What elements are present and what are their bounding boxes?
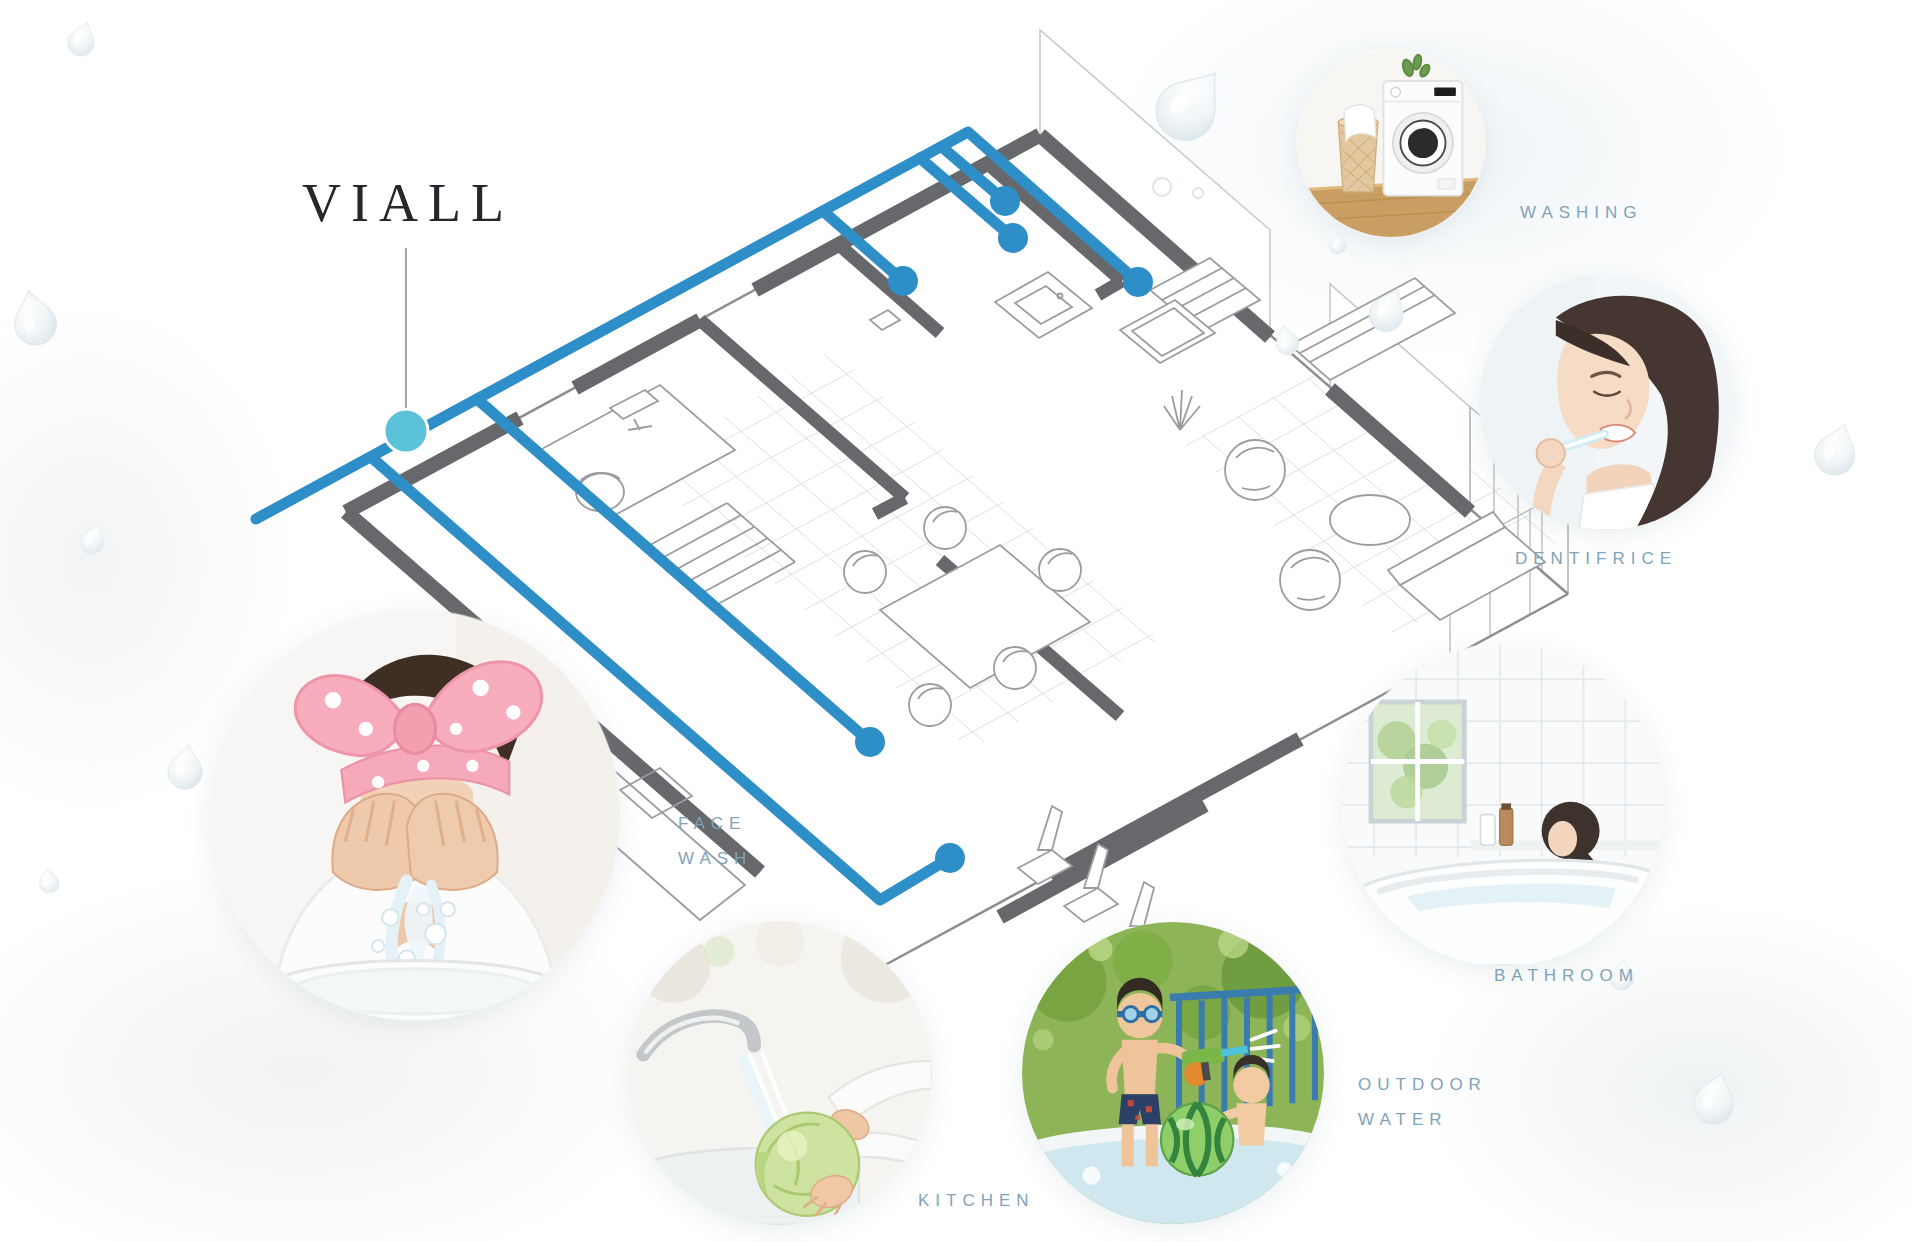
supply-source-dot [384, 409, 428, 453]
brand-connector-line [405, 248, 407, 408]
outlet-dot-washing [990, 186, 1020, 216]
label-outdoor-line1: OUTDOOR [1358, 1075, 1487, 1094]
outlet-dot-kitchen [855, 727, 885, 757]
outdoor-photo-art [1022, 922, 1324, 1224]
label-washing: WASHING [1520, 203, 1643, 223]
photo-outdoor-water [1022, 922, 1324, 1224]
label-kitchen: KITCHEN [918, 1191, 1035, 1211]
label-face-line2: WASH [678, 849, 752, 869]
photo-face-wash [210, 610, 620, 1020]
label-face-wash: FACE WASH [678, 814, 752, 869]
washing-machine [1383, 81, 1462, 196]
wall-art [870, 310, 900, 330]
laundry-basket [1338, 105, 1377, 192]
photo-kitchen [628, 921, 932, 1225]
bathroom-photo-art [1342, 644, 1664, 966]
outlet-dot-bath [1123, 267, 1153, 297]
kitchen-photo-art [628, 921, 932, 1225]
outlet-dot-toilet [888, 266, 918, 296]
dentifrice-photo-art [1479, 274, 1735, 530]
brand-logo: VIALL [248, 172, 568, 234]
face-wash-photo-art [210, 610, 620, 1020]
window [1371, 702, 1464, 821]
hands [332, 794, 497, 890]
photo-washing [1297, 49, 1485, 237]
infographic-page: { "brand": { "name": "VIALL" }, "callout… [0, 0, 1912, 1242]
photo-bathroom [1342, 644, 1664, 966]
watermelon-ball [1161, 1103, 1233, 1175]
label-outdoor-line2: WATER [1358, 1110, 1487, 1130]
photo-dentifrice [1479, 274, 1735, 530]
washing-photo-art [1297, 49, 1485, 237]
outlet-dot-outdoor [935, 843, 965, 873]
label-bathroom: BATHROOM [1494, 966, 1639, 986]
label-face-line1: FACE [678, 814, 746, 833]
bathroom-sink [995, 272, 1092, 338]
label-outdoor-water: OUTDOOR WATER [1358, 1075, 1487, 1130]
outlet-dot-basin [998, 223, 1028, 253]
label-dentifrice: DENTIFRICE [1515, 549, 1677, 569]
